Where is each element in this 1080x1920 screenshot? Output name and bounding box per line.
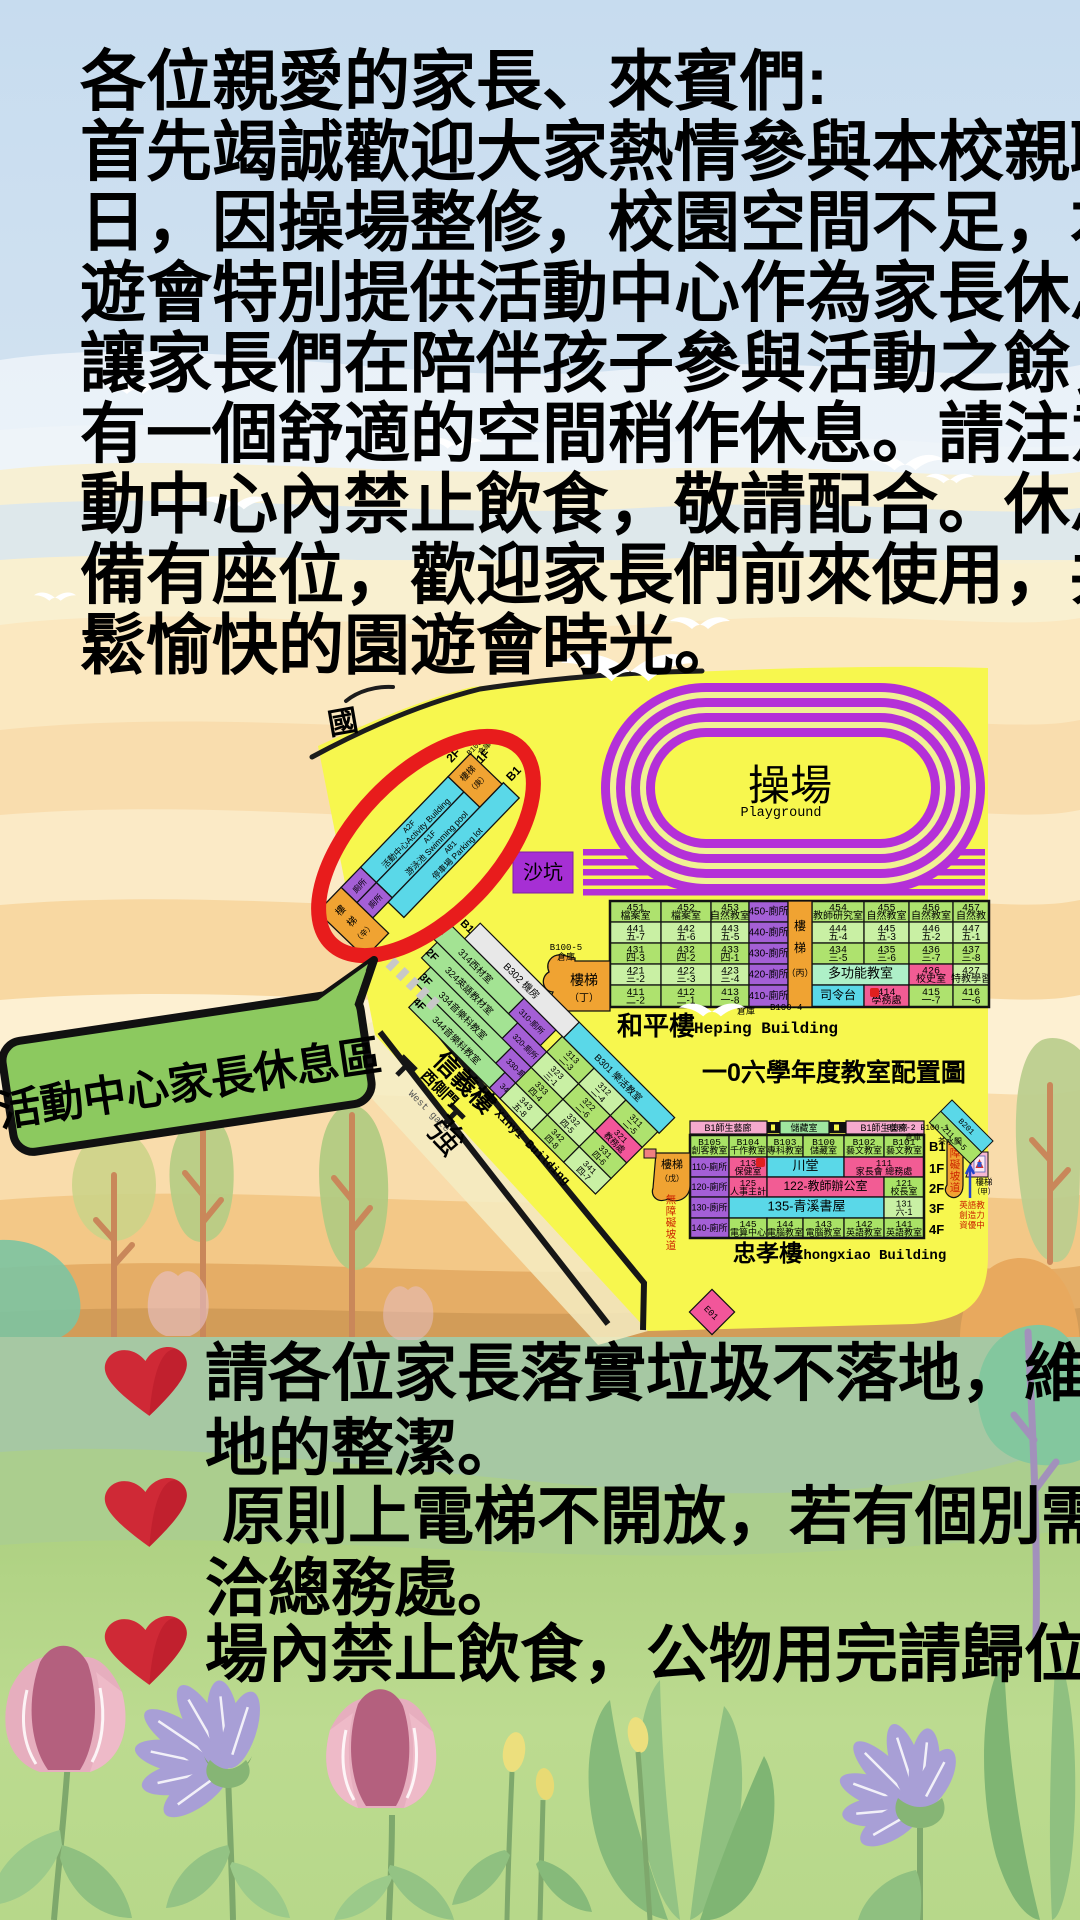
svg-text:五-5: 五-5 xyxy=(721,932,740,943)
svg-text:（甲）: （甲） xyxy=(973,1187,996,1196)
svg-text:創客教室: 創客教室 xyxy=(691,1144,727,1155)
svg-text:122-教師辦公室: 122-教師辦公室 xyxy=(783,1178,867,1193)
svg-text:B100-2 B100-1: B100-2 B100-1 xyxy=(887,1124,950,1133)
svg-text:五-2: 五-2 xyxy=(922,932,941,943)
svg-text:檔案室: 檔案室 xyxy=(671,909,701,922)
svg-text:倉庫: 倉庫 xyxy=(557,951,575,962)
svg-text:電算中心: 電算中心 xyxy=(730,1226,766,1237)
svg-text:藝文教室: 藝文教室 xyxy=(846,1144,882,1155)
svg-text:儲藏室: 儲藏室 xyxy=(810,1144,837,1155)
svg-text:Playground: Playground xyxy=(740,806,821,821)
svg-text:梯: 梯 xyxy=(794,941,806,955)
svg-text:資優中: 資優中 xyxy=(959,1220,985,1230)
svg-text:專科教室: 專科教室 xyxy=(767,1144,803,1155)
svg-text:一0六學年度教室配置圖: 一0六學年度教室配置圖 xyxy=(702,1058,966,1087)
svg-text:原則上電梯不開放，若有個別需求請: 原則上電梯不開放，若有個別需求請 xyxy=(222,1482,1080,1552)
svg-text:沙坑: 沙坑 xyxy=(523,861,563,884)
svg-text:Zhongxiao Building: Zhongxiao Building xyxy=(795,1248,946,1264)
svg-text:樓: 樓 xyxy=(794,918,806,933)
svg-text:自然教室: 自然教室 xyxy=(911,909,951,922)
svg-text:校史室: 校史室 xyxy=(916,972,946,985)
svg-text:千作教室: 千作教室 xyxy=(730,1144,766,1155)
svg-text:440-廁所: 440-廁所 xyxy=(748,926,788,939)
svg-text:和平樓: 和平樓 xyxy=(617,1011,695,1041)
svg-text:2F: 2F xyxy=(929,1181,944,1196)
svg-text:410-廁所: 410-廁所 xyxy=(748,989,788,1002)
svg-text:人事主計: 人事主計 xyxy=(730,1185,766,1196)
svg-text:五-3: 五-3 xyxy=(877,932,896,943)
svg-text:無: 無 xyxy=(666,1193,677,1206)
svg-text:礙: 礙 xyxy=(666,1216,677,1229)
svg-text:四-1: 四-1 xyxy=(721,953,740,964)
svg-text:四-2: 四-2 xyxy=(677,953,696,964)
svg-text:請各位家長落實垃圾不落地，維持場: 請各位家長落實垃圾不落地，維持場 xyxy=(205,1339,1080,1409)
svg-text:遊會特別提供活動中心作為家長休息區，: 遊會特別提供活動中心作為家長休息區， xyxy=(80,256,1080,330)
svg-text:五-6: 五-6 xyxy=(677,932,696,943)
svg-text:多功能教室: 多功能教室 xyxy=(828,966,893,981)
svg-text:儲藏室: 儲藏室 xyxy=(790,1122,817,1133)
svg-text:五-1: 五-1 xyxy=(962,932,981,943)
svg-text:三-7: 三-7 xyxy=(922,953,941,964)
svg-text:各位親愛的家長、來賓們:: 各位親愛的家長、來賓們: xyxy=(80,44,828,118)
svg-text:130-廁所: 130-廁所 xyxy=(691,1202,727,1213)
svg-text:四-3: 四-3 xyxy=(626,953,645,964)
svg-text:五-7: 五-7 xyxy=(626,932,645,943)
svg-text:有一個舒適的空間稍作休息。請注意，活: 有一個舒適的空間稍作休息。請注意，活 xyxy=(80,397,1080,471)
svg-text:坡: 坡 xyxy=(950,1170,961,1183)
svg-text:五-4: 五-4 xyxy=(829,932,848,943)
svg-text:樓梯: 樓梯 xyxy=(661,1157,683,1171)
svg-text:家長會 總務處: 家長會 總務處 xyxy=(856,1165,913,1176)
svg-text:樓梯: 樓梯 xyxy=(975,1177,993,1187)
svg-text:道: 道 xyxy=(666,1239,677,1252)
svg-text:洽總務處。: 洽總務處。 xyxy=(205,1554,520,1624)
svg-text:坡: 坡 xyxy=(666,1228,677,1241)
svg-text:特教學習: 特教學習 xyxy=(951,972,991,985)
svg-text:三-6: 三-6 xyxy=(877,953,896,964)
svg-text:120-廁所: 120-廁所 xyxy=(691,1181,727,1192)
svg-text:B100-4: B100-4 xyxy=(770,1003,802,1013)
svg-text:礙: 礙 xyxy=(950,1158,961,1171)
svg-text:自然教: 自然教 xyxy=(956,909,986,922)
svg-text:英語教: 英語教 xyxy=(959,1200,985,1210)
svg-text:B1師生藝廊: B1師生藝廊 xyxy=(704,1122,751,1133)
svg-text:一-7: 一-7 xyxy=(922,995,941,1006)
svg-text:場內禁止飲食，公物用完請歸位唷^_^: 場內禁止飲食，公物用完請歸位唷^_^ xyxy=(205,1620,1080,1690)
svg-text:Heping Building: Heping Building xyxy=(694,1020,838,1038)
svg-text:電腦教室: 電腦教室 xyxy=(767,1226,803,1237)
svg-text:（丙）: （丙） xyxy=(786,968,813,978)
svg-text:1F: 1F xyxy=(929,1161,944,1176)
svg-text:茶水間: 茶水間 xyxy=(938,1136,962,1146)
svg-text:電腦教室: 電腦教室 xyxy=(805,1226,841,1237)
svg-text:三-4: 三-4 xyxy=(721,974,740,985)
svg-text:（丁）: （丁） xyxy=(569,992,599,1004)
svg-text:430-廁所: 430-廁所 xyxy=(748,947,788,960)
svg-text:動中心內禁止飲食，敬請配合。休息區內: 動中心內禁止飲食，敬請配合。休息區內 xyxy=(80,467,1080,541)
svg-text:一-6: 一-6 xyxy=(962,995,981,1006)
svg-text:藝文教室: 藝文教室 xyxy=(886,1144,922,1155)
svg-text:自然教室: 自然教室 xyxy=(710,909,750,922)
svg-text:川堂: 川堂 xyxy=(792,1158,818,1173)
svg-text:英語教室: 英語教室 xyxy=(846,1226,882,1237)
svg-text:校長室: 校長室 xyxy=(890,1185,917,1196)
svg-text:讓家長們在陪伴孩子參與活動之餘，也能: 讓家長們在陪伴孩子參與活動之餘，也能 xyxy=(80,326,1080,400)
svg-text:420-廁所: 420-廁所 xyxy=(748,968,788,981)
svg-text:三-2: 三-2 xyxy=(626,974,645,985)
svg-text:110-廁所: 110-廁所 xyxy=(692,1161,727,1172)
svg-text:自然教室: 自然教室 xyxy=(867,909,907,922)
svg-text:140-廁所: 140-廁所 xyxy=(691,1222,727,1233)
svg-text:日，因操場整修，校園空間不足，本次園: 日，因操場整修，校園空間不足，本次園 xyxy=(80,185,1080,259)
svg-text:鬆愉快的園遊會時光。: 鬆愉快的園遊會時光。 xyxy=(80,608,740,682)
svg-text:450-廁所: 450-廁所 xyxy=(748,905,788,918)
svg-text:三-8: 三-8 xyxy=(962,953,981,964)
svg-text:六-1: 六-1 xyxy=(895,1206,912,1217)
svg-text:檔案室: 檔案室 xyxy=(621,909,651,922)
svg-text:司令台: 司令台 xyxy=(820,987,856,1002)
svg-text:道: 道 xyxy=(950,1181,961,1194)
svg-text:創造力: 創造力 xyxy=(959,1210,985,1220)
svg-text:三-3: 三-3 xyxy=(677,974,696,985)
svg-text:教師研究室: 教師研究室 xyxy=(813,909,863,922)
svg-text:二-2: 二-2 xyxy=(626,995,645,1006)
svg-text:地的整潔。: 地的整潔。 xyxy=(205,1414,520,1484)
svg-text:三-5: 三-5 xyxy=(829,953,848,964)
svg-text:首先竭誠歡迎大家熱情參與本校親職教育: 首先竭誠歡迎大家熱情參與本校親職教育 xyxy=(80,115,1080,189)
svg-text:國: 國 xyxy=(325,704,360,742)
svg-text:操場: 操場 xyxy=(748,762,832,809)
svg-text:忠孝樓: 忠孝樓 xyxy=(733,1240,802,1266)
svg-text:樓梯: 樓梯 xyxy=(570,972,598,988)
svg-text:備有座位，歡迎家長們前來使用，共享輕: 備有座位，歡迎家長們前來使用，共享輕 xyxy=(80,538,1080,612)
svg-text:英語教室: 英語教室 xyxy=(886,1226,922,1237)
svg-text:倉庫: 倉庫 xyxy=(905,1132,921,1142)
svg-text:障: 障 xyxy=(666,1205,677,1218)
svg-text:135-青溪書屋: 135-青溪書屋 xyxy=(767,1199,845,1214)
svg-text:3F: 3F xyxy=(929,1201,944,1216)
svg-text:（戊）: （戊） xyxy=(660,1173,684,1183)
svg-text:4F: 4F xyxy=(929,1222,944,1237)
svg-text:保健室: 保健室 xyxy=(734,1165,761,1176)
